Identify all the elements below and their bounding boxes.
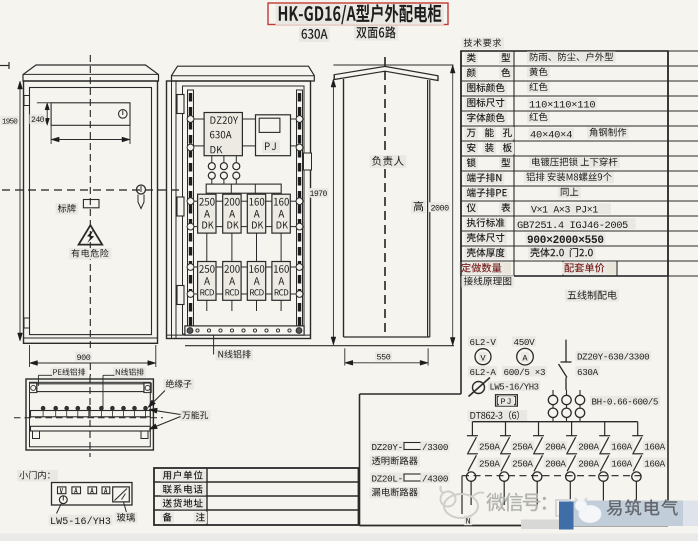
svg-text:DZ20Y-: DZ20Y- [372, 442, 403, 453]
svg-text:200A: 200A [578, 458, 599, 469]
svg-text:V×1 A×3 PJ×1: V×1 A×3 PJ×1 [531, 205, 598, 216]
svg-text:BH-0.66-600/5: BH-0.66-600/5 [592, 397, 658, 408]
svg-text:110×110×110: 110×110×110 [529, 100, 595, 112]
svg-text:LW5-16/YH3: LW5-16/YH3 [490, 383, 539, 393]
svg-text:900×2000×550: 900×2000×550 [527, 235, 604, 247]
svg-text:DZ20Y-630/3300: DZ20Y-630/3300 [577, 352, 649, 363]
svg-text:A: A [522, 353, 528, 363]
svg-text:/4300: /4300 [422, 473, 448, 484]
svg-text:200A: 200A [545, 442, 566, 453]
svg-text:200A: 200A [578, 442, 599, 453]
svg-text:240: 240 [31, 116, 45, 125]
svg-text:V: V [480, 353, 486, 363]
svg-text:160A: 160A [644, 442, 665, 453]
svg-text:6L2-V: 6L2-V [470, 337, 497, 348]
svg-text:6L2-A: 6L2-A [470, 367, 497, 378]
svg-text:250A: 250A [479, 442, 500, 453]
svg-text:600/5 ×3: 600/5 ×3 [504, 367, 546, 378]
svg-text:1970: 1970 [310, 190, 328, 199]
svg-text:200A: 200A [545, 458, 566, 469]
svg-text:1950: 1950 [2, 119, 18, 127]
svg-text:PJ: PJ [500, 397, 512, 407]
svg-text:/3300: /3300 [422, 442, 448, 453]
svg-text:900: 900 [77, 353, 91, 363]
svg-text:GB7251.4 IGJ46-2005: GB7251.4 IGJ46-2005 [517, 220, 628, 232]
svg-text:630A: 630A [577, 367, 599, 378]
svg-text:250A: 250A [479, 458, 500, 469]
svg-text:450V: 450V [514, 337, 536, 348]
svg-text:250A: 250A [512, 458, 533, 469]
svg-text:550: 550 [377, 353, 391, 363]
svg-text:160A: 160A [611, 442, 632, 453]
svg-text:250A: 250A [512, 442, 533, 453]
svg-text:40×40×4: 40×40×4 [530, 130, 572, 142]
svg-text:DZ20L-: DZ20L- [372, 473, 403, 484]
svg-text:160A: 160A [644, 458, 665, 469]
svg-text:2000: 2000 [431, 203, 450, 213]
svg-text:LW5-16/YH3: LW5-16/YH3 [50, 516, 111, 528]
svg-text:160A: 160A [611, 458, 632, 469]
